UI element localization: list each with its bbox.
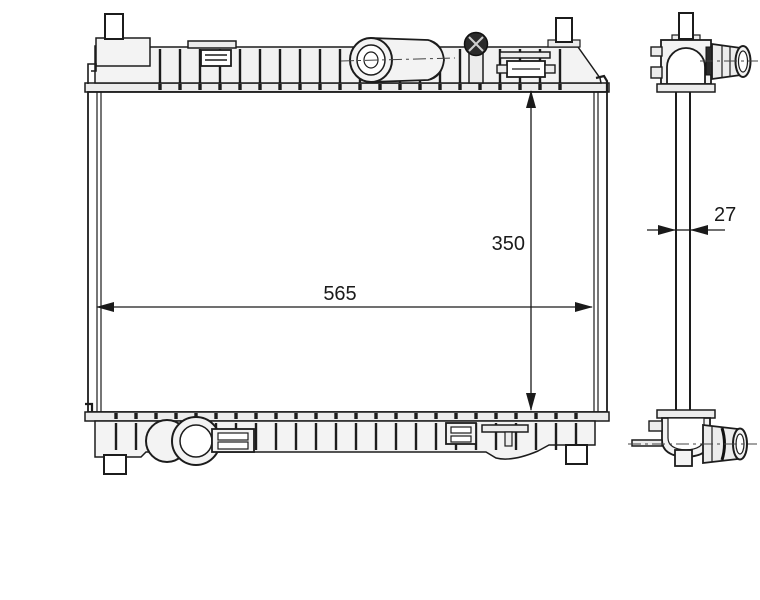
- inlet-pipe: [341, 38, 455, 82]
- outlet-pipe: [146, 417, 220, 465]
- bracket-slot: [218, 433, 248, 440]
- mounting-pin-side-top: [679, 13, 693, 39]
- bracket-clip: [201, 50, 231, 66]
- height-dimension-label: 350: [492, 233, 525, 255]
- side-view: [628, 13, 758, 466]
- filler-cap-stem: [469, 52, 483, 83]
- drawing-canvas: 565 350 27: [0, 0, 760, 600]
- side-top-flange: [657, 84, 715, 92]
- bracket-bar: [482, 425, 528, 432]
- mounting-pin-side-bottom: [675, 450, 692, 466]
- side-top-tank: [651, 13, 758, 92]
- bracket-plate: [500, 52, 550, 58]
- bracket-slot: [218, 442, 248, 449]
- top-bracket-right: [497, 52, 555, 77]
- side-tab: [651, 67, 662, 78]
- bracket-tab: [545, 65, 555, 73]
- side-bottom-flange: [657, 410, 715, 418]
- dimension-depth: 27: [647, 204, 736, 230]
- top-tank-flange: [85, 83, 609, 92]
- bracket-slot: [451, 427, 471, 433]
- top-left-mount-block: [96, 38, 150, 66]
- side-core: [676, 92, 690, 410]
- bottom-tank: [85, 412, 609, 474]
- bracket-stem: [505, 432, 512, 446]
- bracket-plate: [188, 41, 236, 48]
- mounting-pin-bottom-right: [566, 445, 587, 464]
- side-bottom-tank: [628, 410, 757, 466]
- mounting-pin-top-left: [105, 14, 123, 39]
- side-bracket-bar: [632, 440, 662, 446]
- side-bottom-tank-bowl: [668, 418, 704, 450]
- top-tank: [85, 14, 609, 92]
- bracket-tab: [497, 65, 507, 73]
- side-top-tank-dome: [667, 48, 705, 84]
- radiator-core: [85, 76, 607, 412]
- mounting-pin-bottom-left: [104, 455, 126, 474]
- mounting-pin-top-right: [556, 18, 572, 42]
- core-face: [88, 92, 607, 412]
- side-inlet-pipe: [700, 44, 758, 79]
- outlet-pipe-bore: [180, 425, 212, 457]
- bracket-slot: [451, 436, 471, 442]
- side-tab: [649, 421, 662, 431]
- depth-dimension-label: 27: [714, 204, 736, 226]
- top-tank-flange-ticks: [160, 84, 560, 90]
- bottom-bracket-left: [212, 429, 254, 452]
- radiator-technical-drawing: 565 350 27: [0, 0, 760, 600]
- side-tab: [651, 47, 662, 56]
- width-dimension-label: 565: [323, 283, 356, 305]
